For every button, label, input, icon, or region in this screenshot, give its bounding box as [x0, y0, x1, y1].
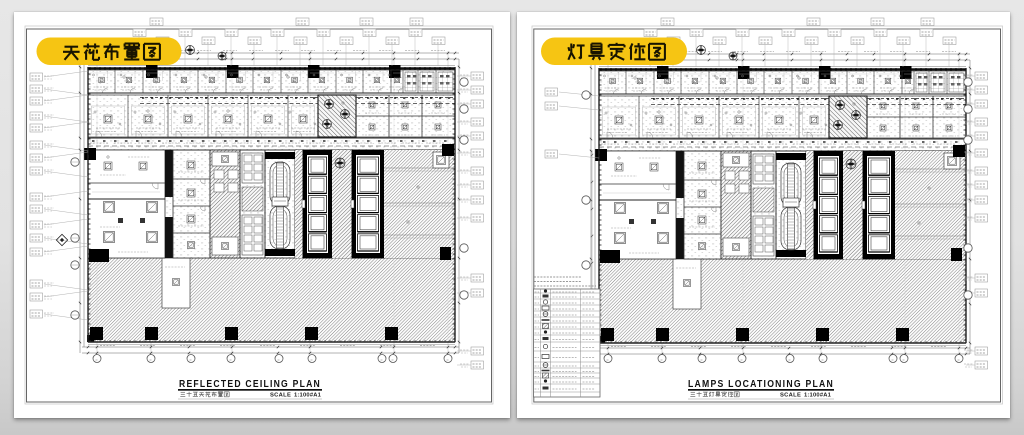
svg-text:1:100#A1: 1:100#A1: [804, 393, 832, 399]
svg-text:SCALE: SCALE: [270, 393, 291, 399]
svg-text:REFLECTED CEILING PLAN: REFLECTED CEILING PLAN: [179, 379, 321, 390]
svg-text:1:100#A1: 1:100#A1: [294, 393, 322, 399]
svg-text:SCALE: SCALE: [780, 393, 801, 399]
svg-text:LAMPS LOCATIONING PLAN: LAMPS LOCATIONING PLAN: [688, 379, 834, 390]
